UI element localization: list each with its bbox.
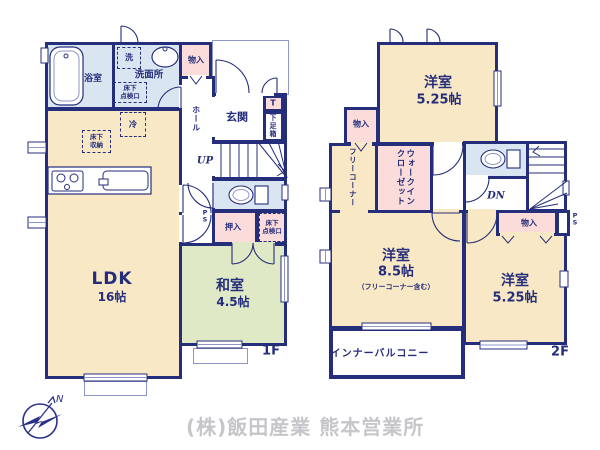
opening-free-corner xyxy=(340,208,368,215)
washroom-hatch-label: 床下 点検口 xyxy=(120,85,140,101)
room-stairs-1f xyxy=(212,141,287,180)
ldk-step xyxy=(84,381,147,396)
room-washitsu xyxy=(179,243,287,346)
company-name: (株)飯田産業 熊本営業所 xyxy=(186,411,424,440)
label-floor2: 2F xyxy=(551,346,569,361)
opening-hall-stairs xyxy=(212,144,217,176)
room-ldk xyxy=(45,108,182,379)
compass-n-label: N xyxy=(56,394,64,405)
room-storage-2f-top xyxy=(344,107,379,145)
room-toilet-2f xyxy=(463,141,529,179)
room-inner-balcony xyxy=(329,327,465,379)
opening-washitsu xyxy=(179,215,186,242)
closet-hatch-label: 床下 点検口 xyxy=(262,220,282,236)
opening-washroom xyxy=(179,85,185,108)
opening-bedroom-main xyxy=(433,209,459,215)
fridge-box: 冷 xyxy=(120,112,146,137)
underfloor-storage-label: 床下 収納 xyxy=(90,134,103,150)
room-walk-in-closet xyxy=(375,143,433,213)
room-stairs-2f xyxy=(526,141,567,212)
opening-storage-2f-top xyxy=(351,142,372,147)
opening-ldk xyxy=(179,185,186,212)
opening-oshiire xyxy=(232,242,275,247)
label-ps-2f: P S xyxy=(573,213,578,228)
room-landing-2f xyxy=(463,176,529,213)
room-free-corner xyxy=(329,143,378,213)
room-storage-1f xyxy=(179,42,212,79)
label-floor1: 1F xyxy=(262,345,280,360)
room-oshiire xyxy=(212,210,258,245)
entrance-porch xyxy=(212,40,289,95)
shoe-box xyxy=(263,111,284,142)
underfloor-storage-box: 床下 収納 xyxy=(82,130,111,153)
opening-bedroom-top xyxy=(434,142,462,148)
laundry-label: 洗 xyxy=(125,53,133,63)
washitsu-step xyxy=(193,348,248,364)
pipe-space-2f-box xyxy=(556,210,570,236)
room-bath xyxy=(45,42,115,110)
floor-plan-page: 洗 床下 点検口 冷 床下 収納 床下 点検口 xyxy=(0,0,600,450)
closet-hatch-box: 床下 点検口 xyxy=(259,213,285,242)
shoe-counter-t xyxy=(263,95,284,112)
room-bedroom-main xyxy=(329,210,465,329)
washroom-hatch-box: 床下 点検口 xyxy=(113,82,147,103)
room-toilet-1f xyxy=(212,178,287,212)
opening-storage-1f xyxy=(188,75,206,80)
opening-bedroom-right xyxy=(468,209,496,215)
opening-entrance xyxy=(216,90,274,96)
opening-toilet-1f xyxy=(212,181,217,208)
laundry-box: 洗 xyxy=(117,47,141,69)
compass-icon: N xyxy=(18,394,64,438)
room-bedroom-top xyxy=(377,42,498,145)
opening-hall-entrance xyxy=(211,97,217,137)
fridge-label: 冷 xyxy=(129,120,137,130)
opening-toilet-2f xyxy=(466,175,488,180)
opening-storage-2f-mid xyxy=(500,232,554,237)
